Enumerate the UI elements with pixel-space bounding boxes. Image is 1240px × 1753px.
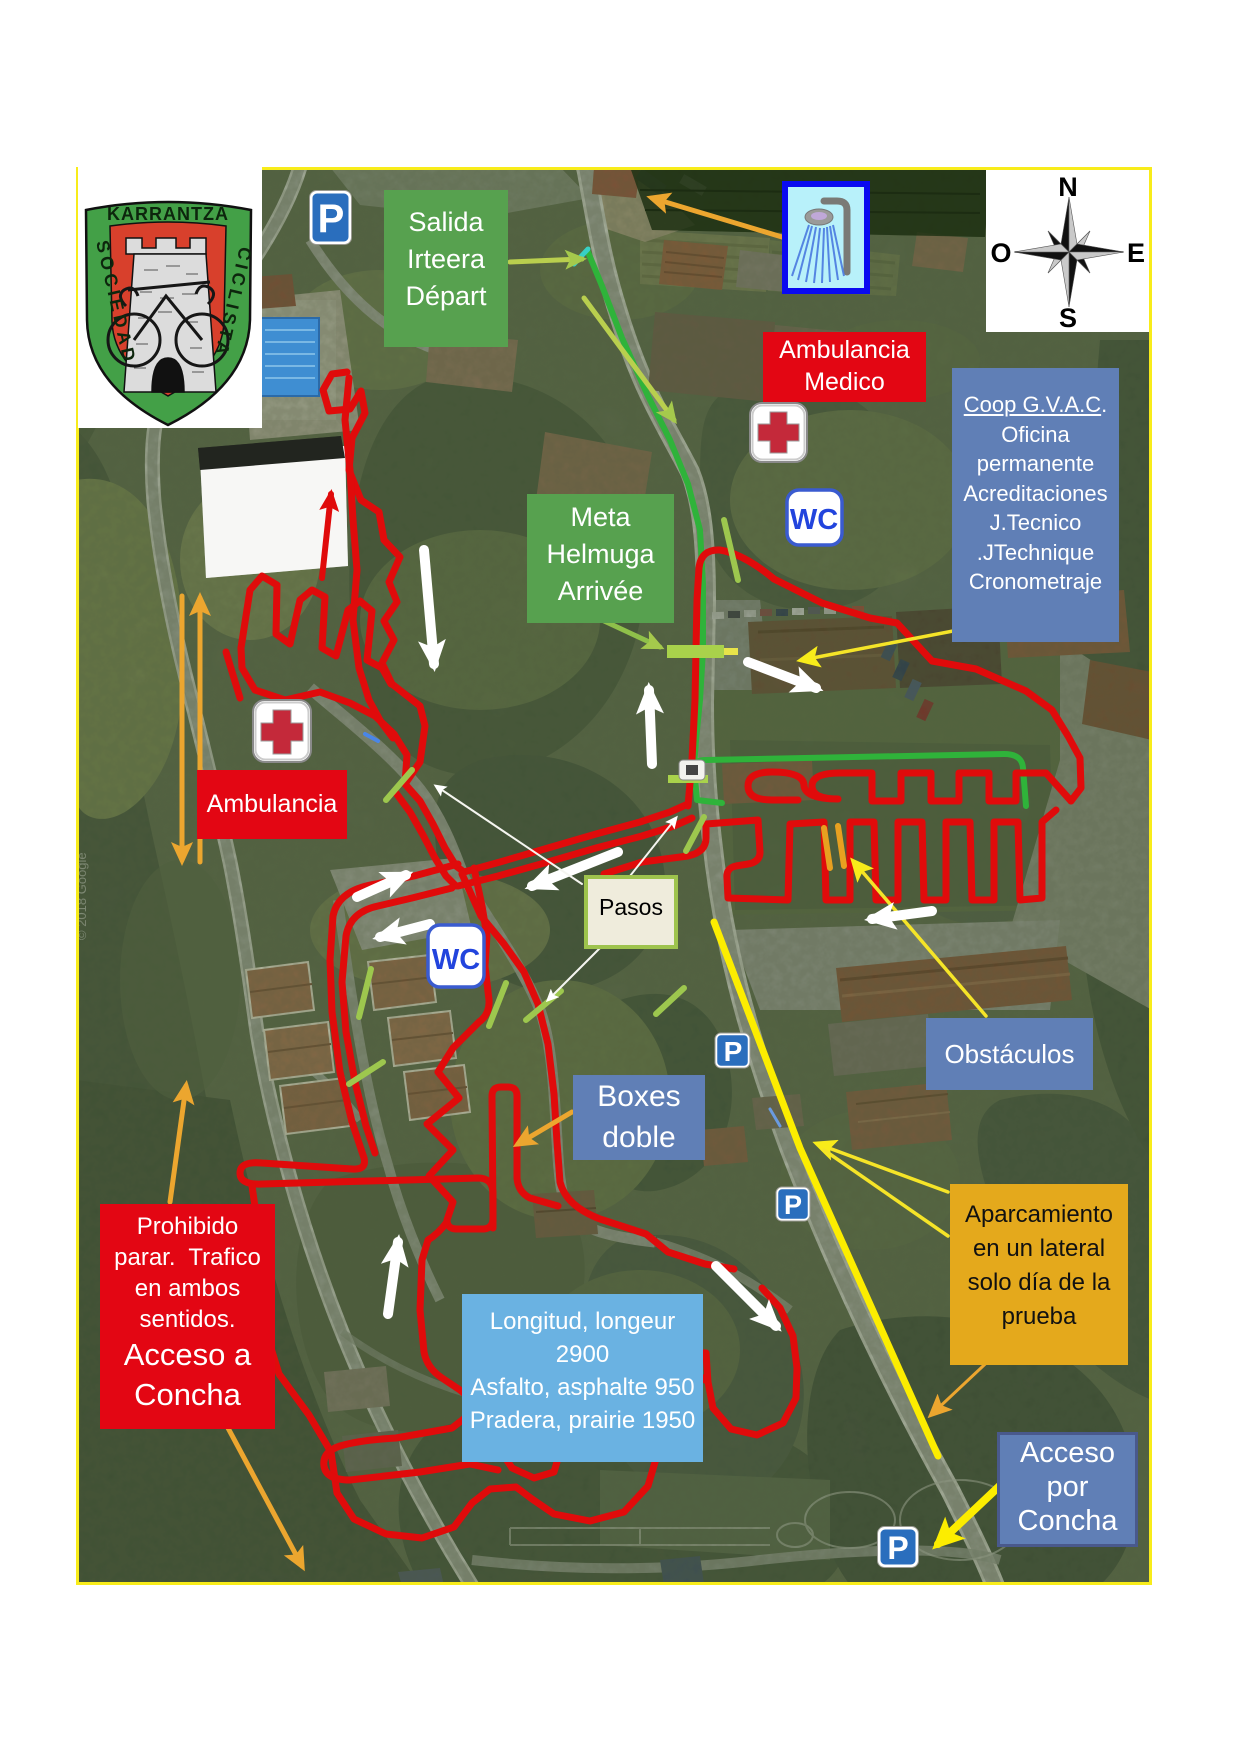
svg-text:KARRANTZA: KARRANTZA (107, 204, 229, 224)
svg-text:P: P (887, 1530, 908, 1566)
svg-text:WC: WC (790, 504, 838, 536)
svg-text:S: S (1059, 303, 1077, 333)
svg-text:E: E (1127, 238, 1145, 268)
svg-text:O: O (990, 238, 1011, 268)
svg-text:N: N (1058, 172, 1078, 202)
svg-text:P: P (724, 1036, 743, 1067)
svg-text:P: P (784, 1190, 802, 1220)
svg-text:WC: WC (432, 944, 480, 976)
svg-text:P: P (318, 197, 345, 241)
